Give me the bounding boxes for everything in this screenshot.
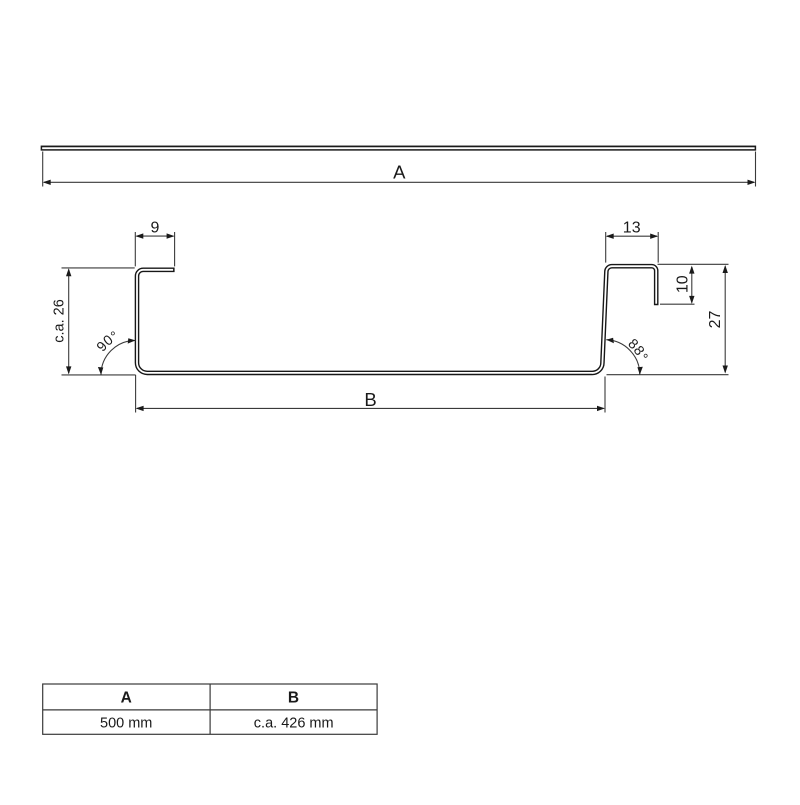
svg-text:B: B [288, 690, 299, 707]
svg-text:A: A [393, 162, 406, 183]
svg-text:c.a. 426 mm: c.a. 426 mm [254, 715, 334, 731]
svg-text:A: A [121, 690, 132, 707]
svg-text:500 mm: 500 mm [100, 715, 152, 731]
svg-text:10: 10 [675, 275, 692, 293]
svg-text:9: 9 [151, 219, 160, 236]
svg-text:B: B [364, 389, 376, 410]
svg-text:13: 13 [623, 219, 641, 236]
svg-text:c.a. 26: c.a. 26 [51, 299, 67, 343]
svg-text:27: 27 [707, 311, 724, 329]
